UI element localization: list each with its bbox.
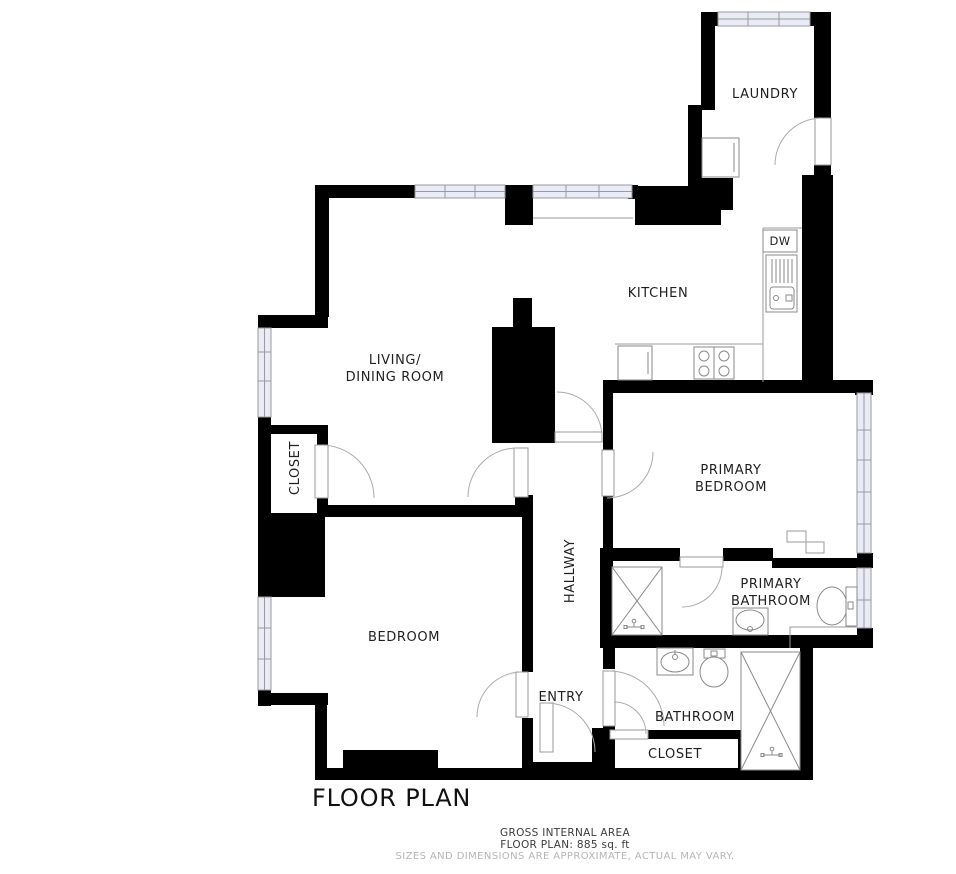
door-leaf bbox=[315, 445, 328, 498]
room-label-living-line1: LIVING/ bbox=[369, 353, 421, 368]
room-label-primary-bedroom-line2: BEDROOM bbox=[695, 480, 767, 495]
floor-plan-page: LAUNDRY KITCHEN DW LIVING/ DINING ROOM C… bbox=[0, 0, 956, 874]
floor-plan-drawing: LAUNDRY KITCHEN DW LIVING/ DINING ROOM C… bbox=[0, 0, 956, 874]
stove-icon bbox=[694, 347, 734, 379]
cabinet-icon bbox=[618, 346, 652, 380]
washer-icon bbox=[702, 138, 739, 177]
room-label-living-line2: DINING ROOM bbox=[346, 370, 445, 385]
room-label-primary-bedroom-line1: PRIMARY bbox=[700, 463, 761, 478]
shower-icon bbox=[612, 567, 662, 635]
room-label-primary-bathroom-line2: BATHROOM bbox=[731, 594, 811, 609]
room-label-bedroom: BEDROOM bbox=[368, 630, 440, 645]
shower-icon bbox=[741, 652, 800, 770]
room-label-primary-bathroom-line1: PRIMARY bbox=[740, 577, 801, 592]
door-leaf bbox=[540, 703, 553, 752]
footer: GROSS INTERNAL AREA FLOOR PLAN: 885 sq. … bbox=[396, 827, 735, 862]
door-leaf bbox=[602, 450, 614, 496]
closet-slider-panel bbox=[806, 542, 824, 553]
door-arc bbox=[468, 448, 517, 497]
room-label-closet-bathroom: CLOSET bbox=[648, 747, 702, 762]
door-leaf bbox=[815, 118, 831, 165]
door-leaf bbox=[610, 730, 648, 739]
door-leaf bbox=[516, 672, 528, 717]
sink-icon bbox=[733, 608, 768, 635]
toilet-icon bbox=[817, 587, 857, 626]
room-label-hallway: HALLWAY bbox=[563, 539, 578, 603]
door-arc bbox=[682, 567, 722, 607]
toilet-icon bbox=[700, 649, 728, 687]
door-arc bbox=[321, 445, 374, 498]
door-leaf bbox=[555, 432, 602, 442]
door-arc bbox=[614, 702, 646, 734]
footer-floor-plan-area: FLOOR PLAN: 885 sq. ft bbox=[500, 839, 629, 851]
room-label-bathroom: BATHROOM bbox=[655, 710, 735, 725]
room-label-laundry: LAUNDRY bbox=[732, 87, 798, 102]
footer-disclaimer: SIZES AND DIMENSIONS ARE APPROXIMATE, AC… bbox=[396, 851, 735, 862]
dishwasher-label: DW bbox=[769, 234, 790, 248]
door-leaf bbox=[680, 557, 723, 567]
closet-slider-panel bbox=[787, 531, 806, 542]
door-arc bbox=[477, 672, 522, 717]
footer-gross-area: GROSS INTERNAL AREA bbox=[500, 827, 630, 839]
room-label-kitchen: KITCHEN bbox=[628, 286, 689, 301]
door-leaf bbox=[603, 671, 615, 726]
sink-icon bbox=[657, 648, 693, 675]
door-leaf bbox=[514, 448, 528, 497]
room-label-entry: ENTRY bbox=[538, 690, 583, 705]
page-title: FLOOR PLAN bbox=[312, 784, 471, 812]
door-arc bbox=[557, 392, 602, 437]
room-label-closet-left: CLOSET bbox=[288, 441, 303, 495]
